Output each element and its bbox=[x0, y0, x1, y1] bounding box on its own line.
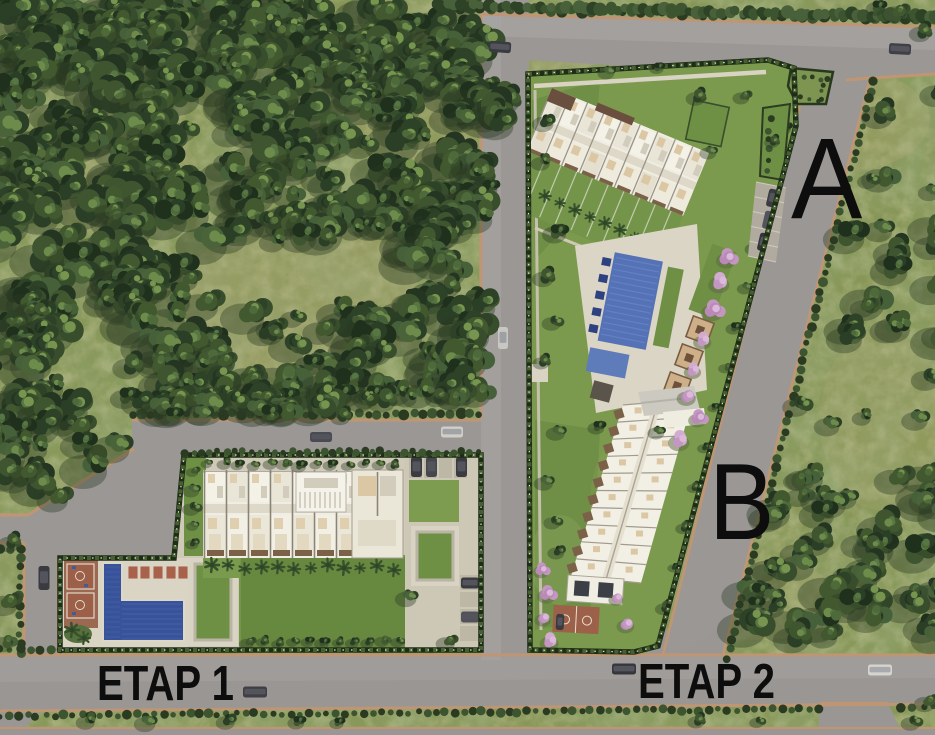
svg-text:A: A bbox=[791, 113, 862, 242]
svg-text:ETAP 1: ETAP 1 bbox=[97, 656, 234, 711]
svg-text:ETAP 2: ETAP 2 bbox=[638, 654, 775, 709]
svg-text:B: B bbox=[709, 440, 774, 562]
